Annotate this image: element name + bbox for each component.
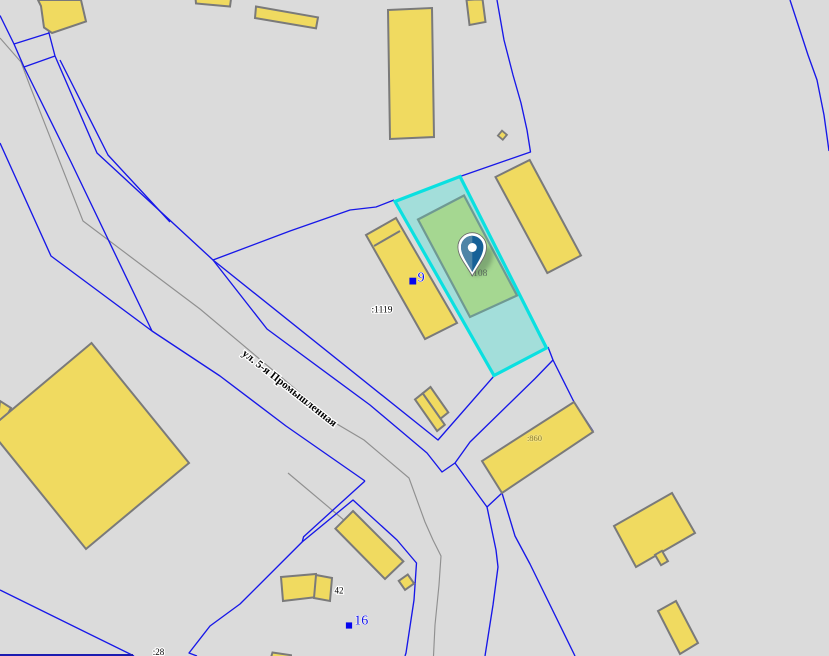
svg-text:42: 42 [335,586,344,596]
svg-text::28: :28 [153,647,165,656]
svg-text::860: :860 [527,433,542,443]
svg-text:16: 16 [354,614,368,629]
svg-text::1119: :1119 [372,306,393,316]
svg-text:9: 9 [418,270,425,285]
